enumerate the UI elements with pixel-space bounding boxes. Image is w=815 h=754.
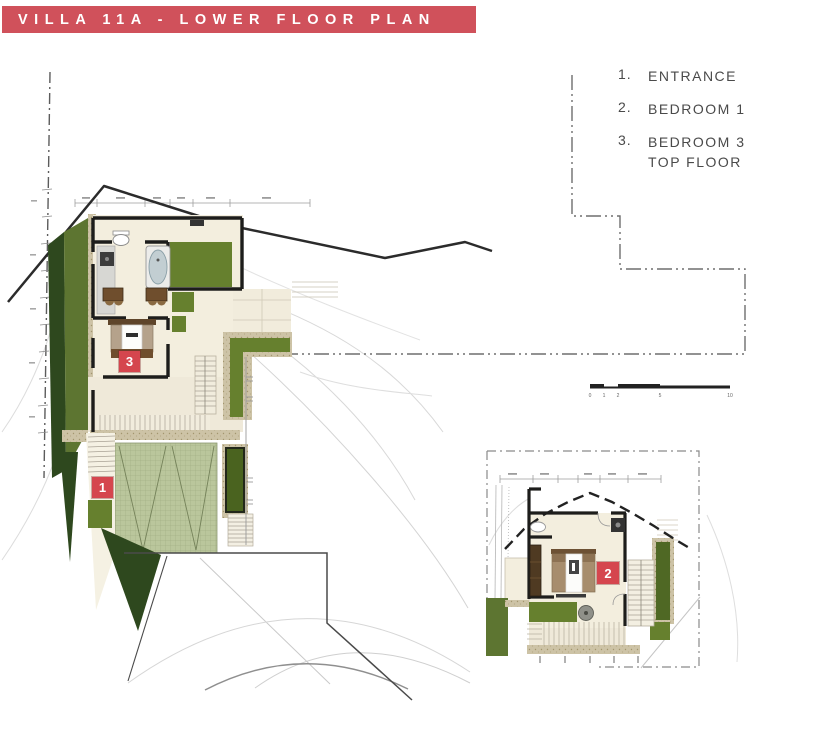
legend-item-bedroom1: 2. BEDROOM 1: [618, 99, 746, 119]
scale-label-1: 1: [603, 393, 606, 399]
stair-small-plan: [628, 560, 654, 626]
large-floor-plan: [48, 214, 412, 700]
wardrobe: [530, 545, 541, 596]
legend: 1. ENTRANCE 2. BEDROOM 1 3. BEDROOM 3 TO…: [618, 66, 746, 185]
scale-label-10: 10: [727, 393, 733, 399]
marker-bedroom3: 3: [119, 351, 140, 372]
scale-label-0: 0: [589, 393, 592, 399]
legend-number: 3.: [618, 132, 648, 172]
legend-label: ENTRANCE: [648, 66, 737, 86]
legend-item-entrance: 1. ENTRANCE: [618, 66, 746, 86]
floor-plan-page: 0 1 2 5 10 VILLA 11A - LOWER FLOOR PLAN …: [0, 0, 815, 754]
courtyard-lawn: [170, 242, 232, 287]
marker-entrance: 1: [92, 477, 113, 498]
dimension-line-top: [75, 197, 310, 207]
marker-bedroom1: 2: [597, 562, 619, 584]
bed-bedroom1: [551, 549, 596, 592]
toilet: [531, 522, 546, 532]
scale-label-2: 2: [617, 393, 620, 399]
legend-number: 2.: [618, 99, 648, 119]
paved-driveway: [115, 443, 217, 553]
scale-bar: 0 1 2 5 10: [589, 384, 733, 399]
stair-large-plan: [195, 356, 216, 414]
legend-label: BEDROOM 3 TOP FLOOR: [648, 132, 746, 172]
legend-item-bedroom3: 3. BEDROOM 3 TOP FLOOR: [618, 132, 746, 172]
legend-number: 1.: [618, 66, 648, 86]
page-title: VILLA 11A - LOWER FLOOR PLAN: [2, 12, 436, 28]
small-floor-plan: [486, 451, 699, 667]
scale-label-5: 5: [659, 393, 662, 399]
title-banner: VILLA 11A - LOWER FLOOR PLAN: [2, 6, 476, 33]
legend-label: BEDROOM 1: [648, 99, 746, 119]
survey-tick-marks: [29, 189, 52, 433]
